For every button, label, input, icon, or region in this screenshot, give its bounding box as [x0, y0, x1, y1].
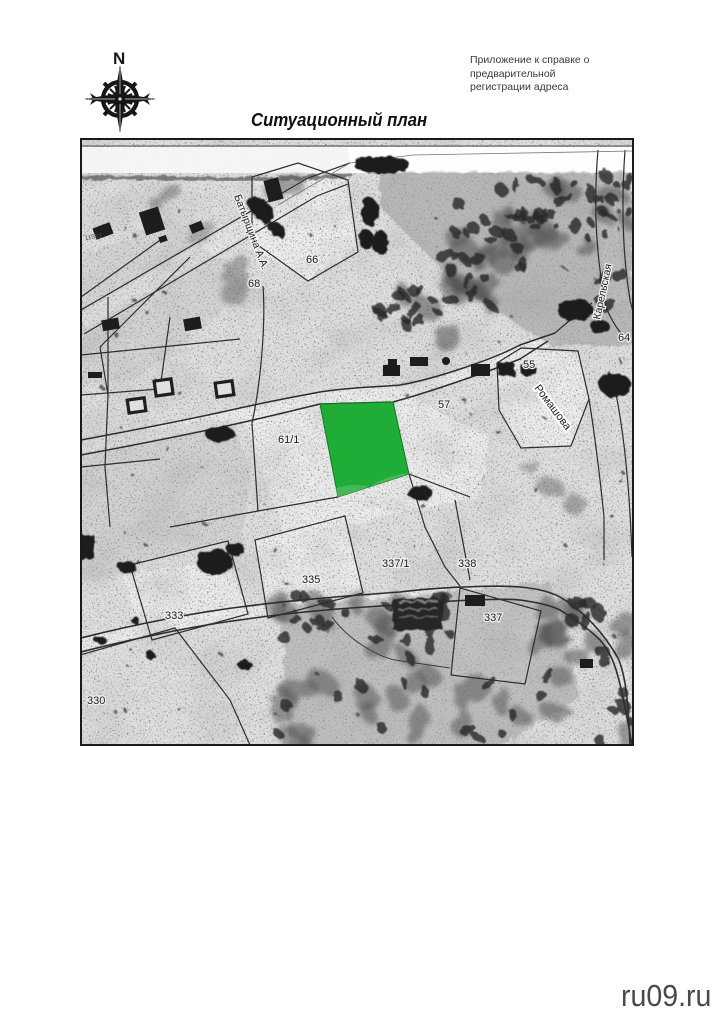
svg-text:337: 337	[484, 612, 502, 624]
svg-text:66: 66	[306, 254, 318, 266]
svg-text:335: 335	[302, 574, 320, 586]
svg-text:337/1: 337/1	[382, 558, 410, 570]
svg-text:333: 333	[165, 610, 183, 622]
svg-text:330: 330	[87, 695, 105, 707]
svg-text:N: N	[113, 49, 125, 68]
svg-text:338: 338	[458, 558, 476, 570]
svg-text:61/1: 61/1	[278, 434, 299, 446]
svg-text:55: 55	[523, 359, 535, 371]
svg-text:64: 64	[618, 332, 630, 344]
svg-text:57: 57	[438, 399, 450, 411]
svg-text:68: 68	[248, 278, 260, 290]
